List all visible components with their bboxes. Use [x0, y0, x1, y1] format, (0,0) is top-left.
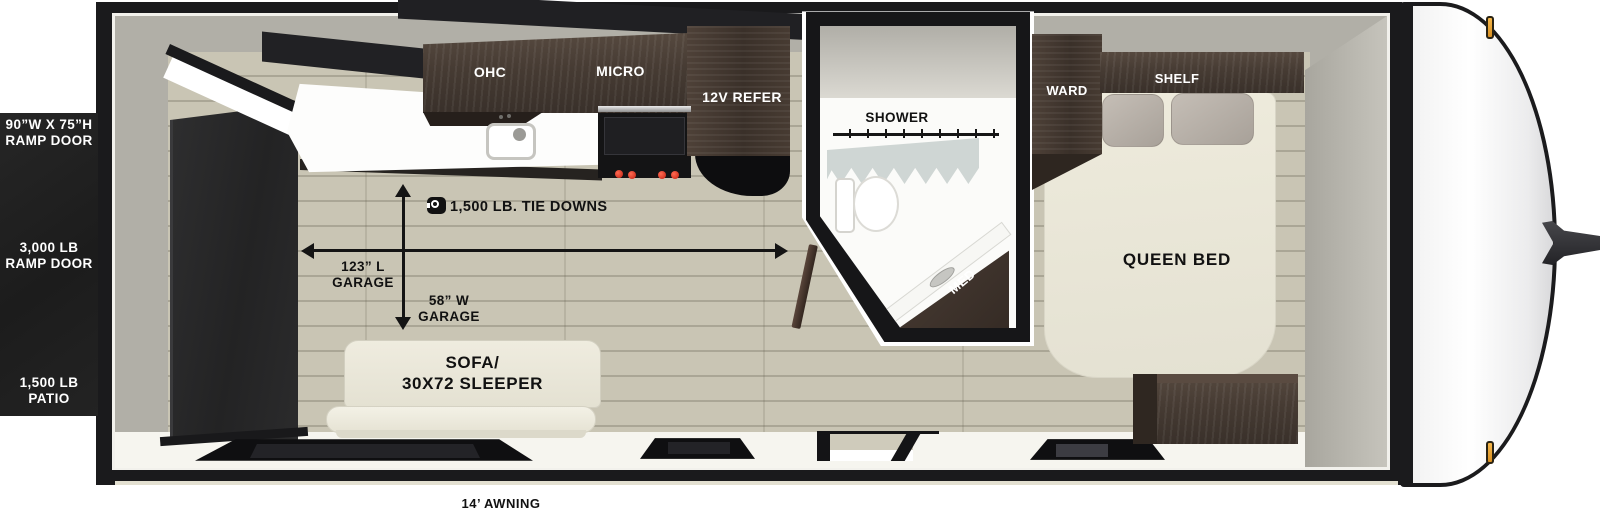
patio-line2: PATIO — [28, 391, 69, 406]
refer-label: 12V REFER — [692, 89, 792, 105]
toilet-tank — [835, 178, 855, 233]
tie-down-icon — [427, 197, 446, 214]
range-surface — [604, 117, 685, 155]
arrow-down-icon — [395, 317, 411, 330]
sofa-label-line2: 30X72 SLEEPER — [402, 374, 543, 393]
ramp-door-weight-line2: RAMP DOOR — [5, 256, 92, 271]
ramp-door-panel — [170, 110, 298, 442]
kitchen-faucet — [513, 128, 526, 141]
entry-door-jamb — [817, 433, 830, 461]
front-interior-wall — [1305, 16, 1387, 467]
ramp-door-weight-line1: 3,000 LB — [20, 240, 79, 255]
burner-knob — [658, 171, 666, 179]
awning-roll — [115, 481, 1398, 485]
garage-length-word: GARAGE — [332, 275, 394, 290]
sink-knob — [499, 115, 503, 119]
garage-length-label: 123” L GARAGE — [323, 259, 403, 290]
marker-light — [1486, 441, 1494, 464]
range-trim — [598, 106, 691, 112]
tie-downs-label: 1,500 LB. TIE DOWNS — [450, 199, 670, 215]
shelf-label: SHELF — [1108, 71, 1246, 86]
shower-curtain-rod — [833, 133, 999, 136]
nightstand-top — [1133, 374, 1298, 383]
marker-light — [1486, 16, 1494, 39]
ohc-label: OHC — [450, 64, 530, 80]
front-cap — [1400, 2, 1557, 487]
pillow — [1171, 93, 1254, 145]
bathroom: SHOWER MED — [802, 8, 1034, 346]
garage-window-glass — [250, 444, 480, 458]
garage-width-word: GARAGE — [418, 309, 480, 324]
ramp-door-size-line1: 90”W X 75”H — [6, 117, 93, 132]
pillow — [1102, 94, 1164, 147]
tie-down-notch — [427, 203, 430, 208]
small-window-glass — [668, 442, 730, 454]
arrow-up-icon — [395, 184, 411, 197]
burner-knob — [671, 171, 679, 179]
shower-label: SHOWER — [837, 110, 957, 125]
sofa-base — [336, 430, 586, 438]
garage-width-value: 58” W — [429, 293, 469, 308]
ramp-door-size-line2: RAMP DOOR — [5, 133, 92, 148]
patio-line1: 1,500 LB — [20, 375, 79, 390]
ramp-door-weight-label: 3,000 LB RAMP DOOR — [0, 240, 98, 271]
micro-label: MICRO — [572, 63, 669, 79]
sofa-label-line1: SOFA/ — [445, 353, 499, 372]
nightstand — [1133, 374, 1298, 444]
floorplan-scene: OHC MICRO 12V REFER 1,500 LB. TIE DOWNS … — [0, 0, 1600, 511]
ramp-door-size-label: 90”W X 75”H RAMP DOOR — [0, 117, 98, 148]
patio-label: 1,500 LB PATIO — [0, 375, 98, 406]
queen-bed-label: QUEEN BED — [1077, 250, 1277, 270]
garage-length-arrow — [313, 249, 775, 252]
arrow-right-icon — [775, 243, 788, 259]
ramp-door-spec-panel: 90”W X 75”H RAMP DOOR 3,000 LB RAMP DOOR… — [0, 113, 98, 416]
sofa-label: SOFA/ 30X72 SLEEPER — [345, 352, 600, 394]
sofa-backrest: SOFA/ 30X72 SLEEPER — [344, 340, 601, 408]
bedroom-window-glass — [1056, 444, 1108, 457]
garage-width-label: 58” W GARAGE — [410, 293, 488, 324]
shower-surround — [820, 26, 1016, 98]
tie-down-ring — [431, 200, 439, 208]
awning-label: 14’ AWNING — [421, 496, 581, 511]
nightstand-side — [1133, 374, 1157, 444]
burner-knob — [628, 171, 636, 179]
garage-width-arrow — [402, 196, 405, 318]
kitchen-sink — [486, 123, 536, 160]
garage-length-value: 123” L — [341, 259, 385, 274]
sink-knob — [507, 114, 511, 118]
sofa-seat — [326, 406, 596, 433]
toilet-bowl — [853, 176, 899, 232]
burner-knob — [615, 170, 623, 178]
arrow-left-icon — [301, 243, 314, 259]
wardrobe-label: WARD — [1032, 83, 1102, 98]
